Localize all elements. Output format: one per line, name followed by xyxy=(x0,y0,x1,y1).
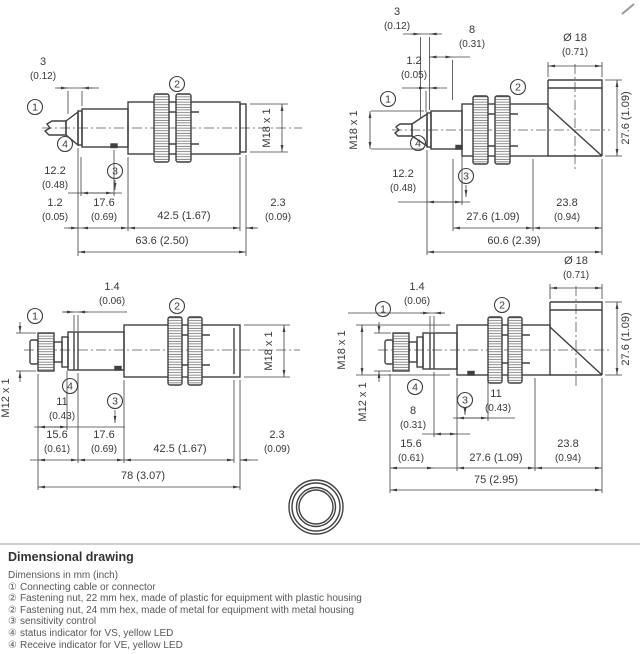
dim-1-4: 1.4 xyxy=(104,281,119,293)
fastening-nut xyxy=(168,317,182,385)
dim-11-inch: (0.43) xyxy=(485,403,511,414)
washer-grooves xyxy=(74,332,78,370)
thread-label: M18 x 1 xyxy=(348,110,360,149)
dim-12-2-inch: (0.48) xyxy=(390,183,416,194)
dim-1-4-inch: (0.06) xyxy=(404,296,430,307)
drawing-cable-straight: 3 (0.12) M18 x 1 12.2 (0.48) 1.2 (0.05) … xyxy=(28,56,303,256)
drawing-plug-angled: Ø 18 (0.71) 27.6 (1.09) 1.4 (0.06) M18 x… xyxy=(336,255,632,493)
callout-2: 2 xyxy=(174,79,180,91)
dim-15-6: 15.6 xyxy=(400,438,421,450)
dim-2-3-inch: (0.09) xyxy=(264,444,290,455)
drawing-plug-straight: 1.4 (0.06) M12 x 1 M18 x 1 11 (0.43) 15.… xyxy=(0,281,300,490)
plug-neck xyxy=(409,342,417,362)
dim-1-2-inch: (0.05) xyxy=(401,70,427,81)
drawing-cable-angled: 3 (0.12) 8 (0.31) 1.2 (0.05) Ø 18 (0.71)… xyxy=(348,6,632,255)
legend-item: ③sensitivity control xyxy=(8,616,640,628)
legend-item: ②Fastening nut, 22 mm hex, made of plast… xyxy=(8,593,640,605)
ref-2-icon: ② xyxy=(8,593,17,604)
legend-intro: Dimensions in mm (inch) xyxy=(8,570,640,582)
dim-17-6-inch: (0.69) xyxy=(91,444,117,455)
dim-total: 63.6 (2.50) xyxy=(135,235,188,247)
dim-15-6-inch: (0.61) xyxy=(398,453,424,464)
dim-15-6: 15.6 xyxy=(46,429,67,441)
front-section xyxy=(423,333,457,369)
dim-3: 3 xyxy=(394,6,400,18)
sensitivity-pot xyxy=(456,146,462,150)
plug-tip xyxy=(30,340,38,364)
dim-27-6-vert: 27.6 (1.09) xyxy=(620,312,632,365)
dim-dia18: Ø 18 xyxy=(563,32,587,44)
fastening-nut xyxy=(176,94,191,162)
legend-item: ④Receive indicator for VE, yellow LED xyxy=(8,640,640,652)
callout-3: 3 xyxy=(112,166,118,178)
legend: Dimensional drawing Dimensions in mm (in… xyxy=(0,543,640,654)
dim-8: 8 xyxy=(410,405,416,417)
callout-4: 4 xyxy=(415,138,421,150)
callout-1: 1 xyxy=(385,94,391,106)
dim-17-6-inch: (0.69) xyxy=(91,212,117,223)
dim-total: 60.6 (2.39) xyxy=(487,235,540,247)
thread-label: M18 x 1 xyxy=(263,331,275,370)
dimensions: 1.4 (0.06) M12 x 1 M18 x 1 11 (0.43) 15.… xyxy=(0,281,290,490)
dim-3-inch: (0.12) xyxy=(384,21,410,32)
dim-27-6: 27.6 (1.09) xyxy=(469,452,522,464)
legend-item-text: Fastening nut, 24 mm hex, made of metal … xyxy=(20,605,354,616)
dim-dia18: Ø 18 xyxy=(564,255,588,267)
dim-11-inch: (0.43) xyxy=(49,411,75,422)
ref-2-icon: ② xyxy=(8,605,17,616)
dim-27-6: 27.6 (1.09) xyxy=(466,211,519,223)
callout-3: 3 xyxy=(112,396,118,408)
ref-3-icon: ③ xyxy=(8,616,17,627)
dim-8: 8 xyxy=(469,24,475,36)
plug-flange xyxy=(417,337,423,367)
callout-1: 1 xyxy=(32,311,38,323)
callout-4: 4 xyxy=(67,381,73,393)
dim-27-6-vert: 27.6 (1.09) xyxy=(620,91,632,144)
dimensional-drawing-page: 3 (0.12) M18 x 1 12.2 (0.48) 1.2 (0.05) … xyxy=(0,0,640,654)
dim-23-8: 23.8 xyxy=(556,197,577,209)
dim-17-6: 17.6 xyxy=(93,197,114,209)
dim-42-5: 42.5 (1.67) xyxy=(157,210,210,222)
thread-m18-label: M18 x 1 xyxy=(336,330,348,369)
callout-1: 1 xyxy=(32,102,38,114)
callout-2: 2 xyxy=(174,301,180,313)
legend-item: ①Connecting cable or connector xyxy=(8,582,640,594)
dim-1-2: 1.2 xyxy=(406,55,421,67)
dim-23-8-inch: (0.94) xyxy=(555,453,581,464)
callout-4: 4 xyxy=(62,139,68,151)
ref-1-icon: ① xyxy=(8,582,17,593)
drawings-canvas: 3 (0.12) M18 x 1 12.2 (0.48) 1.2 (0.05) … xyxy=(0,0,640,543)
legend-item-text: status indicator for VS, yellow LED xyxy=(20,628,173,639)
dim-23-8-inch: (0.94) xyxy=(554,212,580,223)
dim-1-4: 1.4 xyxy=(409,281,424,293)
dim-total: 75 (2.95) xyxy=(474,474,518,486)
callout-4: 4 xyxy=(412,382,418,394)
callout-3: 3 xyxy=(462,395,468,407)
legend-item-text: sensitivity control xyxy=(20,616,96,627)
washer-grooves xyxy=(430,333,434,369)
dim-11: 11 xyxy=(490,388,501,400)
dim-3-inch: (0.12) xyxy=(30,71,56,82)
sensitivity-pot xyxy=(115,367,121,371)
dimensions: 3 (0.12) 8 (0.31) 1.2 (0.05) Ø 18 (0.71)… xyxy=(348,6,632,255)
dim-17-6: 17.6 xyxy=(93,429,114,441)
legend-item: ④status indicator for VS, yellow LED xyxy=(8,628,640,640)
fastening-nut xyxy=(154,94,169,162)
dim-8-inch: (0.31) xyxy=(400,420,426,431)
dim-dia18-inch: (0.71) xyxy=(562,47,588,58)
front-section xyxy=(68,332,124,370)
fastening-nut xyxy=(473,96,488,164)
sensitivity-pot xyxy=(111,144,117,148)
dim-8-inch: (0.31) xyxy=(459,39,485,50)
dim-1-2: 1.2 xyxy=(47,197,62,209)
legend-item-text: Connecting cable or connector xyxy=(20,582,156,593)
thread-m12-label: M12 x 1 xyxy=(357,382,369,421)
dimensions: Ø 18 (0.71) 27.6 (1.09) 1.4 (0.06) M18 x… xyxy=(336,255,632,493)
dim-2-3-inch: (0.09) xyxy=(265,212,291,223)
callout-1: 1 xyxy=(380,304,386,316)
plug-coupling-ring xyxy=(393,333,409,371)
dim-dia18-inch: (0.71) xyxy=(563,270,589,281)
corner-artifact xyxy=(622,4,634,14)
dim-3: 3 xyxy=(40,56,46,68)
dim-1-4-inch: (0.06) xyxy=(99,296,125,307)
sensor-body xyxy=(30,317,240,385)
dim-11: 11 xyxy=(56,396,67,408)
thread-label: M18 x 1 xyxy=(261,108,273,147)
dim-23-8: 23.8 xyxy=(557,438,578,450)
callout-2: 2 xyxy=(499,300,505,312)
fastening-nut xyxy=(188,317,202,385)
dim-2-3: 2.3 xyxy=(269,429,284,441)
dim-42-5: 42.5 (1.67) xyxy=(153,443,206,455)
legend-item-text: Fastening nut, 22 mm hex, made of plasti… xyxy=(20,593,362,604)
callout-2: 2 xyxy=(515,82,521,94)
dim-12-2: 12.2 xyxy=(392,168,413,180)
plug-neck xyxy=(54,342,62,362)
dim-15-6-inch: (0.61) xyxy=(44,444,70,455)
dim-12-2-inch: (0.48) xyxy=(42,180,68,191)
ref-4-icon: ④ xyxy=(8,640,17,651)
sensor-body xyxy=(385,302,602,383)
dim-12-2: 12.2 xyxy=(44,165,65,177)
legend-title: Dimensional drawing xyxy=(8,550,640,564)
front-view-ring xyxy=(289,480,343,534)
legend-item: ②Fastening nut, 24 mm hex, made of metal… xyxy=(8,605,640,617)
plug-coupling-ring xyxy=(38,333,54,371)
callout-3: 3 xyxy=(463,171,469,183)
plug-flange xyxy=(62,337,68,367)
dim-1-2-inch: (0.05) xyxy=(42,212,68,223)
fastening-nut xyxy=(508,317,522,383)
dim-total: 78 (3.07) xyxy=(121,470,165,482)
thread-m12-label: M12 x 1 xyxy=(0,378,12,417)
legend-item-text: Receive indicator for VE, yellow LED xyxy=(20,640,183,651)
fastening-nut xyxy=(488,317,502,383)
sensitivity-pot xyxy=(468,372,474,376)
plug-tip xyxy=(385,340,393,364)
ref-4-icon: ④ xyxy=(8,628,17,639)
dim-2-3: 2.3 xyxy=(270,197,285,209)
fastening-nut xyxy=(495,96,510,164)
